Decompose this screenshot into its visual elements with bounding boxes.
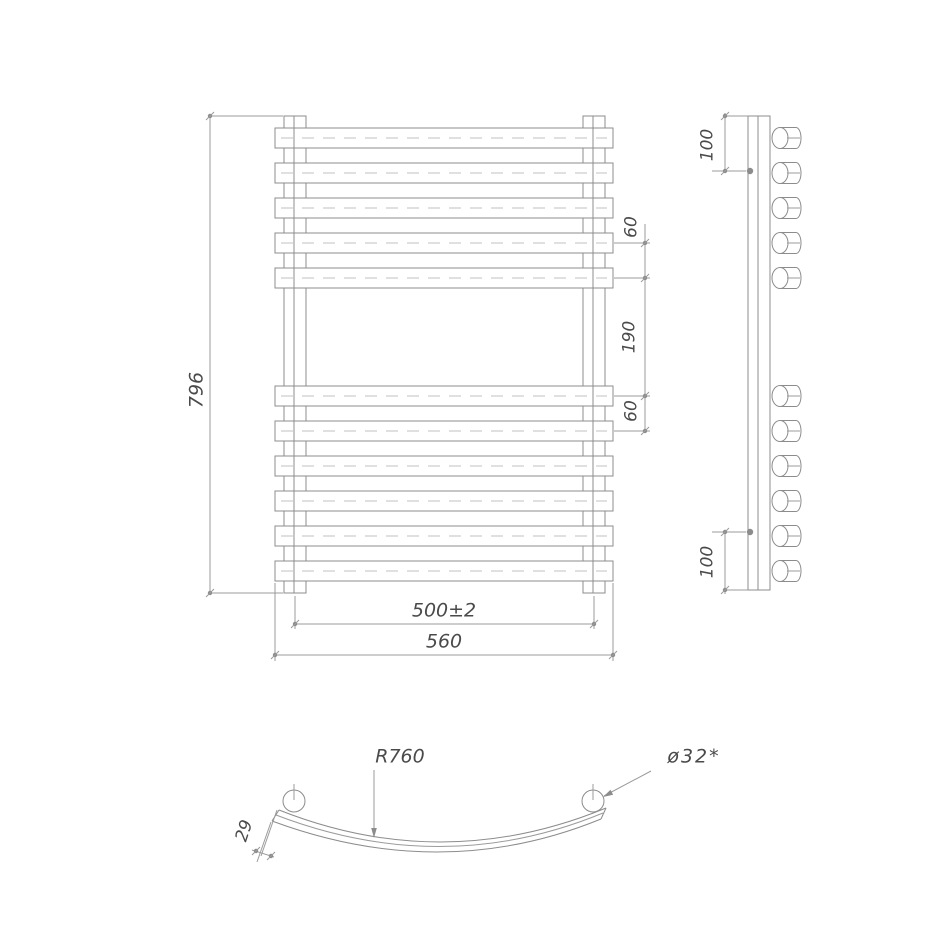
dim-label-towel-gap: 190 bbox=[622, 321, 639, 353]
post-section bbox=[583, 511, 605, 526]
tube-end bbox=[772, 386, 788, 407]
tube-end bbox=[772, 198, 788, 219]
tube-end bbox=[772, 128, 788, 149]
bar-arc-middle bbox=[276, 813, 603, 847]
post-section bbox=[284, 546, 306, 561]
dim-label-bend-radius: R760 bbox=[375, 748, 424, 767]
post-section bbox=[284, 441, 306, 456]
post-section bbox=[284, 288, 306, 386]
post-section bbox=[583, 406, 605, 421]
post-section bbox=[583, 546, 605, 561]
front-view bbox=[275, 116, 613, 593]
dim-label-bottom-offset: 100 bbox=[700, 546, 717, 578]
tube-end bbox=[772, 421, 788, 442]
dim-label-pitch-upper: 60 bbox=[624, 216, 641, 238]
post-section bbox=[583, 441, 605, 456]
post-section bbox=[583, 183, 605, 198]
tube-end bbox=[772, 456, 788, 477]
drawing-canvas: 796 60 190 60 500±2 560 100 100 R760 ø32… bbox=[0, 0, 950, 950]
towel-rail-drawing bbox=[0, 0, 950, 950]
extension-line bbox=[261, 810, 277, 856]
dim-tick bbox=[252, 847, 260, 855]
bar-arc-inner bbox=[272, 819, 601, 852]
post-section bbox=[284, 406, 306, 421]
plan-view bbox=[272, 784, 606, 852]
post-section bbox=[284, 148, 306, 163]
dim-label-top-offset: 100 bbox=[700, 129, 717, 161]
tube-end bbox=[772, 233, 788, 254]
leader-arrow bbox=[603, 790, 613, 797]
post-section bbox=[583, 253, 605, 268]
dim-label-pitch-lower: 60 bbox=[624, 400, 641, 422]
dim-label-collector-diameter: ø32* bbox=[667, 748, 720, 767]
post-cap-top bbox=[284, 116, 306, 128]
side-post bbox=[748, 116, 770, 590]
leader-bend-radius bbox=[371, 770, 377, 838]
dim-tick bbox=[267, 852, 275, 860]
dim-label-connection-width: 500±2 bbox=[412, 602, 476, 621]
side-view bbox=[747, 116, 801, 590]
dim-label-overall-height: 796 bbox=[188, 372, 207, 408]
bracket-dot-top bbox=[747, 168, 753, 174]
post-cap-bottom bbox=[284, 581, 306, 593]
tube-end bbox=[772, 163, 788, 184]
tube-end bbox=[772, 491, 788, 512]
bracket-dot-bottom bbox=[747, 529, 753, 535]
dim-label-overall-width: 560 bbox=[426, 633, 462, 652]
post-section bbox=[583, 148, 605, 163]
post-section bbox=[284, 253, 306, 268]
post-section bbox=[284, 183, 306, 198]
post-section bbox=[583, 476, 605, 491]
post-section bbox=[284, 511, 306, 526]
leader-collector-diameter bbox=[603, 771, 651, 797]
dimension-bar-depth bbox=[252, 810, 277, 862]
tube-end bbox=[772, 268, 788, 289]
bar-arc-outer bbox=[279, 808, 606, 842]
tube-end bbox=[772, 561, 788, 582]
dimension-overall-height bbox=[206, 112, 283, 597]
post-section bbox=[583, 218, 605, 233]
post-section bbox=[583, 288, 605, 386]
post-section bbox=[284, 218, 306, 233]
tube-end bbox=[772, 526, 788, 547]
post-cap-bottom bbox=[583, 581, 605, 593]
post-section bbox=[284, 476, 306, 491]
post-cap-top bbox=[583, 116, 605, 128]
